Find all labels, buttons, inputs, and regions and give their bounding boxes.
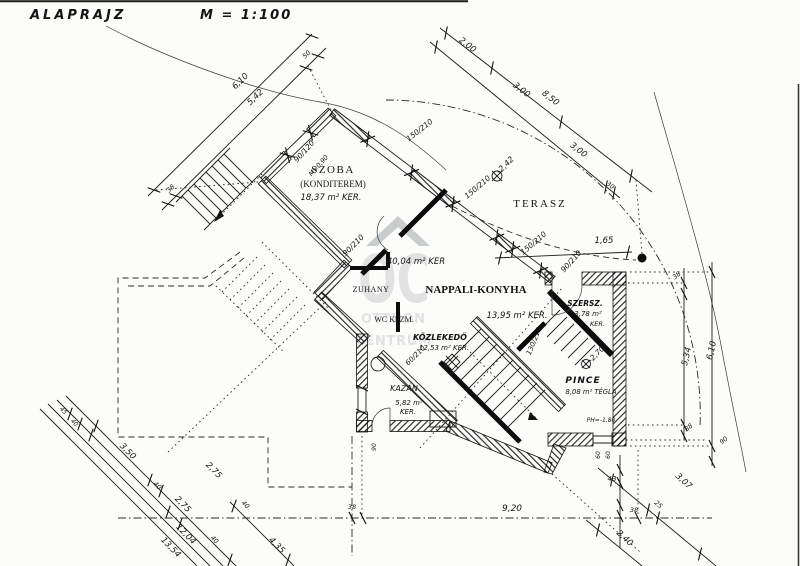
dim-tr-seg1: 2,00 bbox=[457, 36, 478, 56]
window-label-1: 150/210 bbox=[404, 117, 434, 143]
terasz-level: -2,42 bbox=[495, 155, 516, 176]
dim-tr-seg2: 3,00 bbox=[511, 81, 532, 101]
drawing-scale: M = 1:100 bbox=[200, 8, 292, 23]
dim-bl-o1: 45 bbox=[58, 406, 68, 416]
door-label-kazan: 90 bbox=[371, 443, 378, 451]
dim-r-total: 6,10 bbox=[705, 340, 719, 361]
room-area-total: 40,04 m² KER bbox=[387, 257, 445, 267]
room-label-kazan: KAZÁN bbox=[390, 382, 418, 393]
dim-bl-ext: 4,35 bbox=[266, 535, 286, 556]
room-area-kozlekedo: 12,53 m² KER. bbox=[419, 344, 469, 352]
room-label-pince: PINCE bbox=[565, 376, 600, 386]
floor-plan-drawing: OC OTTHON CENTRUM bbox=[0, 0, 800, 566]
dim-tr-total: 8,50 bbox=[540, 89, 561, 109]
room-label-terasz: TERASZ bbox=[513, 198, 567, 210]
dim-br-a: 43 bbox=[608, 475, 617, 483]
room-area-pince: 8,08 m² TÉGLA bbox=[566, 387, 617, 396]
dim-bl-seg2: 2,75 bbox=[203, 460, 223, 481]
dim-tl-wall: 38 bbox=[165, 183, 177, 195]
dim-br-b: 38 bbox=[630, 506, 638, 514]
dim-r-wall-top: 38 bbox=[671, 270, 682, 281]
dim-bl-seg1: 3,50 bbox=[117, 441, 137, 462]
room-label-nappali: NAPPALI-KONYHA bbox=[425, 284, 526, 296]
dim-br-post: 90 bbox=[718, 435, 729, 446]
room-label-kozlekedo: KÖZLEKEDŐ bbox=[413, 332, 467, 342]
dim-b-wall: 38 bbox=[348, 503, 356, 511]
scanned-floor-plan: OC OTTHON CENTRUM bbox=[0, 0, 800, 566]
terrace-post-dot bbox=[638, 254, 647, 263]
ghost-stair bbox=[216, 242, 330, 352]
room-finish-kazan: KER. bbox=[400, 408, 416, 416]
room-label-wc: WC KÉZM. bbox=[374, 314, 414, 324]
dim-b-total: 9,20 bbox=[502, 504, 522, 514]
room-area-nappali: 13,95 m² KER. bbox=[487, 311, 548, 321]
room-area-szersz: 3,78 m² bbox=[574, 310, 602, 318]
terrace-dashed-outline bbox=[118, 252, 352, 487]
drawing-title: ALAPRAJZ bbox=[29, 8, 126, 23]
dim-bl-w2: 40 bbox=[240, 499, 252, 511]
dim-r-inner: 5,34 bbox=[680, 346, 694, 367]
dim-r-wall-bottom: 38 bbox=[683, 422, 694, 433]
exterior-stair bbox=[176, 148, 262, 230]
dim-bl-total1: 12,04 bbox=[173, 522, 197, 546]
small-window-label-a: 60 bbox=[595, 451, 602, 459]
dim-tl-offset: 50 bbox=[301, 49, 313, 61]
room-sublabel-szoba: (KONDITEREM) bbox=[300, 179, 366, 189]
window-label-2: 150/210 bbox=[463, 173, 493, 200]
room-label-szersz: SZERSZ. bbox=[567, 299, 602, 308]
small-window-label-b: 60 bbox=[605, 451, 612, 459]
watermark-letters: OC bbox=[358, 241, 430, 318]
watermark-logo: OC OTTHON CENTRUM bbox=[355, 216, 433, 349]
dim-bl-w3: 40 bbox=[209, 534, 221, 546]
room-finish-szersz: KER. bbox=[590, 320, 605, 328]
dim-br-diag1: 3,07 bbox=[673, 471, 694, 491]
pince-floor-level: PH=-1,80 bbox=[587, 417, 616, 424]
door-label-entrance: 90/210 bbox=[559, 248, 583, 274]
flue-symbol bbox=[444, 354, 460, 370]
dim-entrance-width: 1,65 bbox=[595, 236, 614, 246]
room-area-kazan: 5,82 m² bbox=[395, 399, 423, 407]
room-label-zuhany: ZUHANY bbox=[353, 285, 390, 294]
dim-br-c: 25 bbox=[653, 499, 665, 510]
room-area-szoba: 18,37 m² KER. bbox=[301, 193, 362, 203]
dim-tl-inner: 5,42 bbox=[245, 87, 266, 107]
dim-tl-total: 6,10 bbox=[230, 71, 251, 91]
window-label-3: 150/210 bbox=[519, 229, 549, 256]
